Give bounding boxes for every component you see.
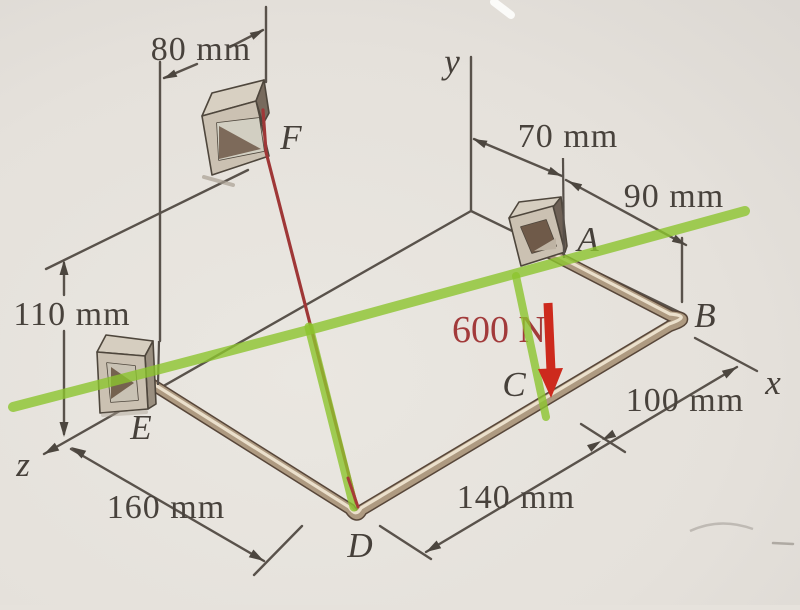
svg-text:F: F: [279, 118, 302, 157]
svg-text:140 mm: 140 mm: [457, 479, 575, 516]
svg-text:110 mm: 110 mm: [13, 296, 130, 333]
svg-text:90 mm: 90 mm: [624, 178, 724, 215]
svg-text:70 mm: 70 mm: [518, 118, 618, 155]
svg-text:C: C: [502, 365, 526, 404]
svg-text:z: z: [15, 445, 30, 484]
svg-text:B: B: [694, 296, 715, 335]
svg-text:x: x: [764, 363, 781, 402]
svg-text:160 mm: 160 mm: [107, 489, 225, 526]
svg-text:80 mm: 80 mm: [151, 31, 251, 68]
svg-text:y: y: [441, 42, 460, 81]
svg-text:D: D: [346, 526, 372, 565]
svg-text:100 mm: 100 mm: [626, 382, 744, 419]
